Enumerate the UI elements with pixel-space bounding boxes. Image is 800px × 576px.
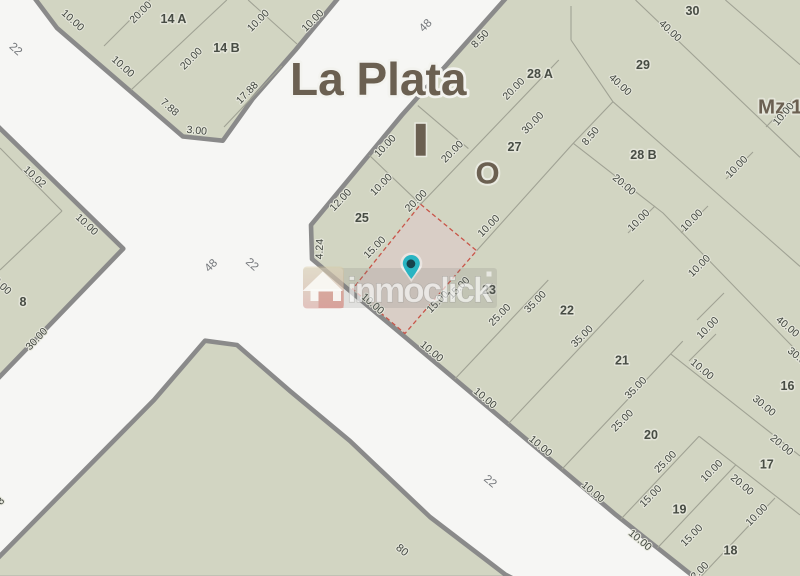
svg-text:28 A: 28 A xyxy=(527,67,553,81)
svg-text:18: 18 xyxy=(724,544,738,558)
svg-text:14 B: 14 B xyxy=(213,41,239,55)
svg-text:27: 27 xyxy=(508,140,522,154)
svg-text:14 A: 14 A xyxy=(161,12,187,26)
svg-text:29: 29 xyxy=(636,58,650,72)
svg-text:28 B: 28 B xyxy=(630,148,656,162)
svg-text:La Plata: La Plata xyxy=(290,53,467,105)
svg-text:30: 30 xyxy=(686,4,700,18)
svg-text:3.00: 3.00 xyxy=(186,124,208,138)
svg-text:20: 20 xyxy=(644,428,658,442)
svg-text:21: 21 xyxy=(615,354,629,368)
svg-text:25: 25 xyxy=(355,211,369,225)
svg-text:O: O xyxy=(476,156,500,191)
svg-text:22: 22 xyxy=(560,304,574,318)
svg-text:4.24: 4.24 xyxy=(313,239,326,260)
svg-text:8: 8 xyxy=(20,295,27,309)
svg-text:inmoclick: inmoclick xyxy=(347,271,493,310)
svg-text:16: 16 xyxy=(781,379,795,393)
svg-text:19: 19 xyxy=(673,503,687,517)
svg-text:17: 17 xyxy=(760,457,774,471)
